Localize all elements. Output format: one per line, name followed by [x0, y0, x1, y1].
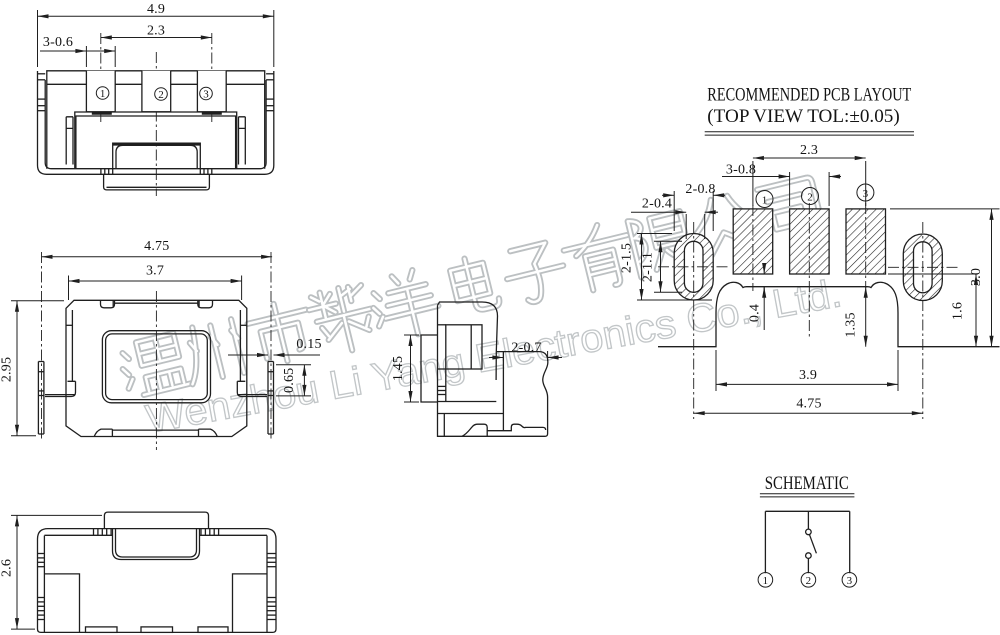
svg-text:1.6: 1.6	[951, 302, 966, 320]
svg-text:(TOP VIEW TOL:±0.05): (TOP VIEW TOL:±0.05)	[707, 106, 899, 127]
svg-text:4.75: 4.75	[144, 239, 169, 254]
svg-text:2-1.5: 2-1.5	[620, 243, 635, 273]
svg-text:3: 3	[847, 575, 853, 587]
svg-text:2.3: 2.3	[147, 24, 165, 39]
svg-text:3.9: 3.9	[799, 368, 817, 383]
svg-text:2-0.4: 2-0.4	[642, 197, 672, 212]
svg-text:2: 2	[158, 89, 164, 101]
svg-text:2-0.7: 2-0.7	[511, 341, 541, 356]
svg-text:1.35: 1.35	[844, 312, 859, 337]
svg-text:RECOMMENDED PCB LAYOUT: RECOMMENDED PCB LAYOUT	[707, 84, 911, 105]
svg-text:2.95: 2.95	[0, 357, 15, 382]
svg-text:2.6: 2.6	[0, 559, 14, 577]
svg-text:1: 1	[762, 195, 768, 207]
svg-text:0.65: 0.65	[282, 368, 297, 393]
svg-text:0.15: 0.15	[296, 337, 321, 352]
svg-text:4.75: 4.75	[796, 397, 821, 412]
svg-text:1: 1	[100, 88, 106, 100]
svg-text:1: 1	[763, 575, 769, 587]
svg-text:2-0.8: 2-0.8	[685, 182, 715, 197]
svg-text:3-0.8: 3-0.8	[726, 163, 756, 178]
svg-text:3.7: 3.7	[146, 264, 164, 279]
svg-text:0.4: 0.4	[748, 304, 763, 322]
svg-text:2-1.1: 2-1.1	[641, 252, 656, 282]
svg-text:2: 2	[806, 575, 812, 587]
svg-text:3: 3	[863, 188, 869, 200]
svg-text:SCHEMATIC: SCHEMATIC	[765, 473, 849, 494]
svg-text:3-0.6: 3-0.6	[43, 35, 73, 50]
svg-text:3.0: 3.0	[969, 268, 984, 286]
svg-text:4.9: 4.9	[147, 2, 165, 17]
svg-text:2.3: 2.3	[800, 143, 818, 158]
svg-text:3: 3	[203, 89, 209, 101]
svg-text:2: 2	[807, 192, 813, 204]
svg-text:1.45: 1.45	[391, 356, 406, 381]
